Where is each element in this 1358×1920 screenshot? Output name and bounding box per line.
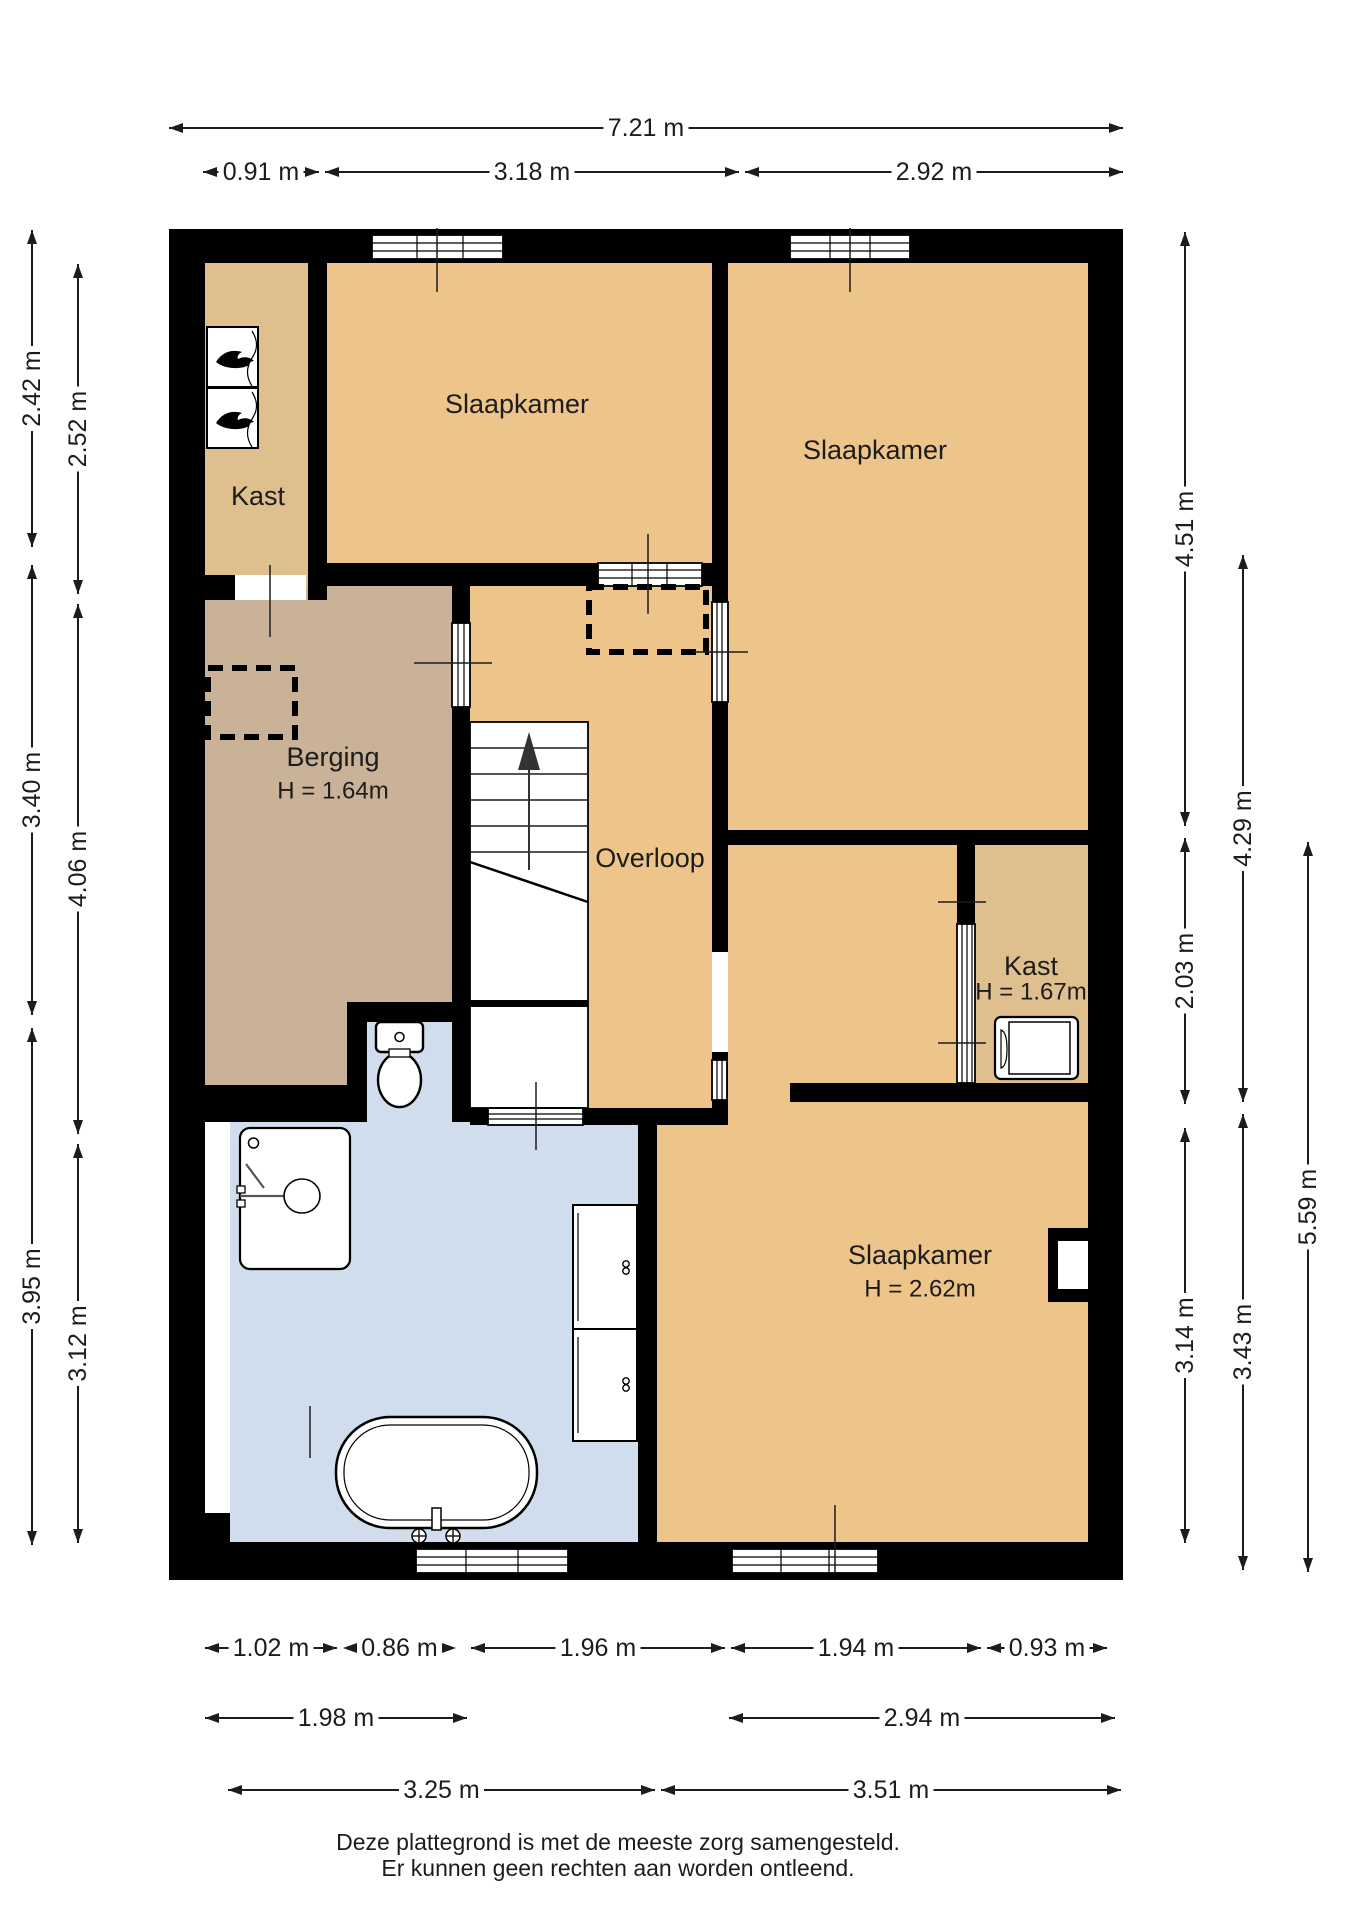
floor-slaapkamer-2 — [712, 263, 1088, 845]
window-berging-east — [452, 623, 470, 707]
dimension-label: 3.95 m — [18, 1248, 46, 1324]
wall-right — [1088, 229, 1123, 1580]
room-label-slaapkamer-2: Slaapkamer — [803, 435, 947, 465]
wall-kast1-east — [308, 263, 327, 600]
dimension-label: 1.98 m — [298, 1704, 374, 1732]
wall-nook-north — [347, 1002, 452, 1022]
dimension: 5.59 m — [1294, 842, 1322, 1572]
wall-left — [169, 229, 205, 1580]
wall-kast2-west — [957, 845, 975, 924]
dimension-label: 2.52 m — [64, 391, 92, 467]
window-badkamer-south — [416, 1549, 568, 1573]
wall-badkamer-slaapkamer3 — [638, 1125, 657, 1545]
dimension-label: 0.93 m — [1009, 1634, 1085, 1662]
dimension-label: 0.86 m — [361, 1634, 437, 1662]
dimension: 4.29 m — [1229, 555, 1257, 1102]
wall-bottom — [169, 1542, 1123, 1580]
wall-left-bottom-block — [205, 1513, 230, 1580]
dimension-label: 5.59 m — [1294, 1169, 1322, 1245]
door-kast2-sliding — [957, 924, 975, 1083]
dimension-label: 2.42 m — [18, 350, 46, 426]
dimension: 1.02 m — [205, 1634, 337, 1662]
dimension: 3.95 m — [18, 1028, 46, 1545]
stairs-divider — [470, 1000, 588, 1007]
dimension-label: 4.29 m — [1229, 790, 1257, 866]
wall-kast1-south — [202, 575, 235, 600]
room-label-kast-2: Kast — [1004, 951, 1059, 981]
dimension: 3.14 m — [1171, 1128, 1199, 1543]
dimension: 0.91 m — [203, 158, 319, 186]
dimension-label: 4.06 m — [64, 831, 92, 907]
wall-kast2-south — [790, 1083, 1088, 1102]
room-label-slaapkamer-1: Slaapkamer — [445, 389, 589, 419]
dimension: 2.03 m — [1171, 838, 1199, 1104]
shower-icon — [237, 1128, 350, 1269]
floorplan-page: SlaapkamerSlaapkamerKastBergingH = 1.64m… — [0, 0, 1358, 1920]
heater-unit-1 — [207, 327, 258, 387]
window-slaapkamer3-south — [732, 1549, 878, 1573]
dimension: 4.51 m — [1171, 232, 1199, 826]
room-label-kast-1: Kast — [231, 481, 286, 511]
wall-top — [169, 229, 1123, 263]
dimension: 1.94 m — [731, 1634, 981, 1662]
dimension: 2.42 m — [18, 230, 46, 547]
dimension: 3.12 m — [64, 1144, 92, 1543]
dimension-label: 3.14 m — [1171, 1297, 1199, 1373]
floorplan-drawing: SlaapkamerSlaapkamerKastBergingH = 1.64m… — [0, 0, 1358, 1920]
dimension-label: 2.92 m — [896, 158, 972, 186]
door-opening-slaapkamer3 — [712, 952, 728, 1052]
dimension-label: 3.12 m — [64, 1305, 92, 1381]
floor-slaapkamer-1 — [327, 263, 712, 586]
dimension: 3.25 m — [228, 1776, 655, 1804]
dimension: 3.43 m — [1229, 1114, 1257, 1570]
dimension: 2.94 m — [729, 1704, 1115, 1732]
dimension-label: 4.51 m — [1171, 491, 1199, 567]
dimension: 0.86 m — [343, 1634, 456, 1662]
dimension: 0.93 m — [987, 1634, 1107, 1662]
wall-slaapkamer2-south — [712, 830, 1123, 845]
heater-unit-2 — [207, 388, 258, 448]
washing-machine-icon — [995, 1017, 1078, 1079]
dimension-label: 7.21 m — [608, 114, 684, 142]
dimension-label: 1.96 m — [560, 1634, 636, 1662]
wall-recess-left — [205, 1122, 230, 1513]
dimension: 3.40 m — [18, 565, 46, 1015]
dimension-label: 0.91 m — [223, 158, 299, 186]
cabinet-icon — [573, 1205, 637, 1441]
dimension-label: 2.94 m — [884, 1704, 960, 1732]
floor-slaapkamer-3 — [638, 1102, 1088, 1542]
dimension: 3.51 m — [661, 1776, 1121, 1804]
dimension: 4.06 m — [64, 604, 92, 1134]
dimension: 3.18 m — [325, 158, 739, 186]
dimension-label: 3.18 m — [494, 158, 570, 186]
room-height-berging: H = 1.64m — [277, 778, 388, 805]
footer-line-1: Deze plattegrond is met de meeste zorg s… — [336, 1829, 900, 1855]
room-label-slaapkamer-3: Slaapkamer — [848, 1240, 992, 1270]
dimension: 1.98 m — [205, 1704, 467, 1732]
wall-niche-inner — [1058, 1241, 1088, 1289]
dimension: 7.21 m — [169, 114, 1123, 142]
dimension: 1.96 m — [471, 1634, 725, 1662]
dimension: 2.52 m — [64, 264, 92, 594]
dimension-label: 1.94 m — [818, 1634, 894, 1662]
toilet-icon — [376, 1022, 423, 1107]
dimension-label: 3.43 m — [1229, 1304, 1257, 1380]
dimension-label: 1.02 m — [233, 1634, 309, 1662]
window-slaapkamer1-south — [598, 563, 702, 586]
room-height-slaapkamer-3: H = 2.62m — [864, 1276, 975, 1303]
dimension: 2.92 m — [745, 158, 1123, 186]
room-label-overloop: Overloop — [595, 843, 705, 873]
wall-badkamer-north — [169, 1085, 367, 1122]
room-label-berging: Berging — [286, 742, 379, 772]
dimension-label: 3.25 m — [403, 1776, 479, 1804]
dimension-label: 3.51 m — [853, 1776, 929, 1804]
footer-line-2: Er kunnen geen rechten aan worden ontlee… — [381, 1855, 854, 1881]
room-height-kast-2: H = 1.67m — [975, 979, 1086, 1006]
window-overloop-slaapkamer3 — [712, 1060, 727, 1100]
dimension-label: 2.03 m — [1171, 933, 1199, 1009]
dimension-label: 3.40 m — [18, 752, 46, 828]
wall-nook-west — [347, 1022, 367, 1085]
footer-disclaimer: Deze plattegrond is met de meeste zorg s… — [336, 1829, 900, 1881]
